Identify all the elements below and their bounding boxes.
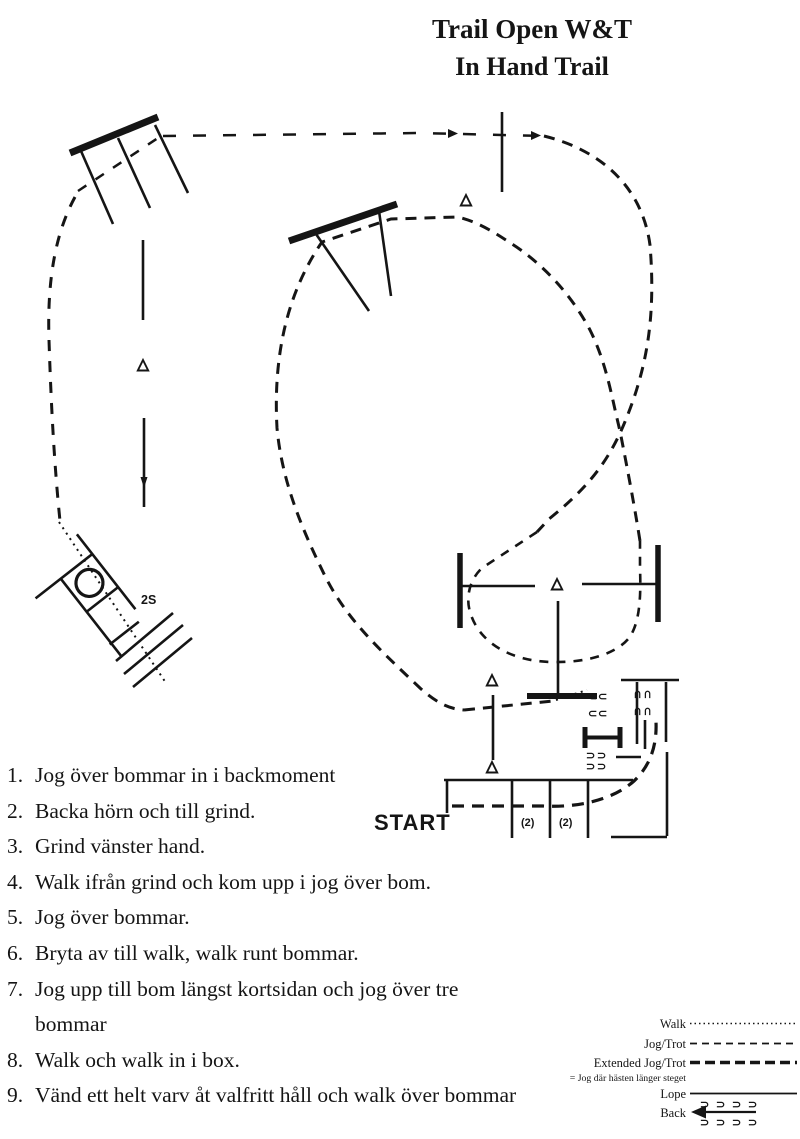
gate-circle [71, 564, 109, 602]
cone-marker [487, 675, 497, 686]
instruction-text: Backa hörn och till grind. [35, 799, 255, 823]
instruction-item-5: 5. Jog över bommar. [6, 900, 522, 936]
obstacle-fan-three-poles [70, 117, 188, 224]
hoofprint-icon: ⊃ [586, 761, 595, 773]
hoofprint-icon: ⊃ [732, 1117, 741, 1129]
instruction-text: Walk och walk in i box. [35, 1048, 240, 1072]
obstacle-ibeam-bom [585, 727, 620, 748]
instruction-text: Jog över bommar. [35, 905, 190, 929]
hoofprint-icon: ⊃ [642, 707, 654, 716]
hoofprint-icon: ⊃ [732, 1099, 741, 1111]
direction-arrow-icon [141, 477, 148, 488]
trail-pattern-page: Trail Open W&T In Hand Trail [0, 0, 800, 1139]
legend-walk-label: Walk [660, 1017, 687, 1031]
legend-back-label: Back [660, 1106, 686, 1120]
distance-label-1: (2) [521, 817, 535, 829]
hoofprint-icon: ⊃ [748, 1099, 757, 1111]
legend-jog-label: Jog/Trot [644, 1037, 686, 1051]
instruction-text: Bryta av till walk, walk runt bommar. [35, 941, 359, 965]
obstacle-fan-two-poles [289, 204, 397, 311]
cone-marker [552, 579, 562, 590]
instruction-item-4: 4. Walk ifrån grind och kom upp i jog öv… [6, 865, 522, 901]
cone-marker [138, 360, 148, 371]
hoofprint-icon: ⊃ [700, 1099, 709, 1111]
instruction-item-3: 3. Grind vänster hand. [6, 829, 522, 865]
obstacle-left-poles [141, 240, 148, 507]
cone-marker [461, 195, 471, 206]
instruction-item-9: 9. Vänd ett helt varv åt valfritt håll o… [6, 1078, 522, 1114]
hoofprint-icon: ⊂ [598, 691, 607, 703]
hoofprint-icon: ⊃ [597, 761, 606, 773]
instruction-item-1: 1. Jog över bommar in i backmoment [6, 758, 522, 794]
instruction-number: 6. [7, 936, 23, 972]
hoofprint-icon: ⊂ [588, 691, 597, 703]
obstacle-gate [20, 534, 192, 687]
instruction-list: 1. Jog över bommar in i backmoment 2. Ba… [6, 758, 522, 1114]
instruction-number: 9. [7, 1078, 23, 1114]
instruction-number: 3. [7, 829, 23, 865]
instruction-text: Jog upp till bom längst kortsidan och jo… [35, 977, 458, 1037]
legend-extended-jog-label: Extended Jog/Trot [594, 1056, 687, 1070]
hoofprint-icon: ⊂ [598, 708, 607, 720]
instruction-item-8: 8. Walk och walk in i box. [6, 1043, 522, 1079]
instruction-item-7: 7. Jog upp till bom längst kortsidan och… [6, 972, 522, 1043]
instruction-number: 4. [7, 865, 23, 901]
path-arrow-icon [448, 129, 458, 138]
obstacle-turn-box [460, 545, 658, 697]
instruction-number: 1. [7, 758, 23, 794]
hoofprint-icon: ⊃ [700, 1117, 709, 1129]
instruction-text: Grind vänster hand. [35, 834, 205, 858]
instruction-number: 5. [7, 900, 23, 936]
hoofprint-icon: ⊃ [748, 1117, 757, 1129]
instruction-item-6: 6. Bryta av till walk, walk runt bommar. [6, 936, 522, 972]
instruction-text: Vänd ett helt varv åt valfritt håll och … [35, 1083, 516, 1107]
legend-back-symbol: ⊃ ⊃ ⊃ ⊃ ⊃ ⊃ ⊃ ⊃ [691, 1099, 757, 1129]
legend-extended-jog-note: = Jog där hästen länger steget [570, 1073, 687, 1084]
instruction-number: 7. [7, 972, 23, 1008]
legend: Walk Jog/Trot Extended Jog/Trot = Jog dä… [570, 1017, 797, 1129]
instruction-text: Walk ifrån grind och kom upp i jog över … [35, 870, 431, 894]
distance-label-2: (2) [559, 817, 573, 829]
hoofprint-icon: ⊃ [716, 1117, 725, 1129]
hoofprint-icon: ⊂ [588, 708, 597, 720]
instruction-text: Jog över bommar in i backmoment [35, 763, 335, 787]
instruction-item-2: 2. Backa hörn och till grind. [6, 794, 522, 830]
hoofprint-icon: ⊃ [716, 1099, 725, 1111]
hoofprint-icon: ⊃ [642, 690, 654, 699]
path-arrow-icon [531, 131, 541, 140]
instruction-number: 8. [7, 1043, 23, 1079]
course-path-lines [49, 129, 656, 806]
instruction-number: 2. [7, 794, 23, 830]
gate-label: 2S [141, 593, 156, 607]
legend-lope-label: Lope [660, 1087, 686, 1101]
obstacle-back-corner [611, 680, 679, 837]
